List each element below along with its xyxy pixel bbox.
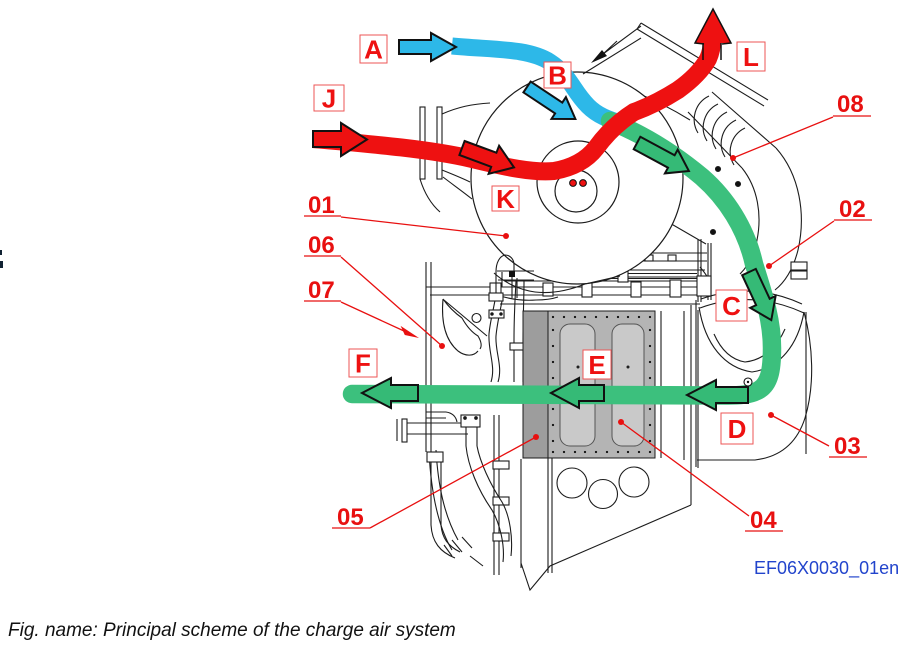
- svg-text:K: K: [496, 184, 515, 214]
- svg-text:04: 04: [750, 507, 777, 534]
- svg-text:08: 08: [837, 91, 864, 118]
- svg-text:Fig. name: Principal scheme of: Fig. name: Principal scheme of the charg…: [8, 620, 456, 641]
- svg-text:02: 02: [839, 196, 866, 223]
- svg-text:B: B: [548, 60, 567, 90]
- svg-text:A: A: [364, 34, 383, 64]
- svg-text:C: C: [722, 291, 741, 321]
- svg-text:01: 01: [308, 192, 335, 219]
- svg-text:05: 05: [337, 504, 364, 531]
- svg-text:06: 06: [308, 232, 335, 259]
- svg-text:E: E: [588, 350, 605, 380]
- svg-text:F: F: [355, 348, 371, 378]
- svg-text:07: 07: [308, 277, 335, 304]
- svg-text:D: D: [728, 414, 747, 444]
- svg-text:J: J: [322, 83, 336, 113]
- svg-text:03: 03: [834, 433, 861, 460]
- svg-text:L: L: [743, 42, 759, 72]
- svg-text:EF06X0030_01en: EF06X0030_01en: [754, 558, 899, 579]
